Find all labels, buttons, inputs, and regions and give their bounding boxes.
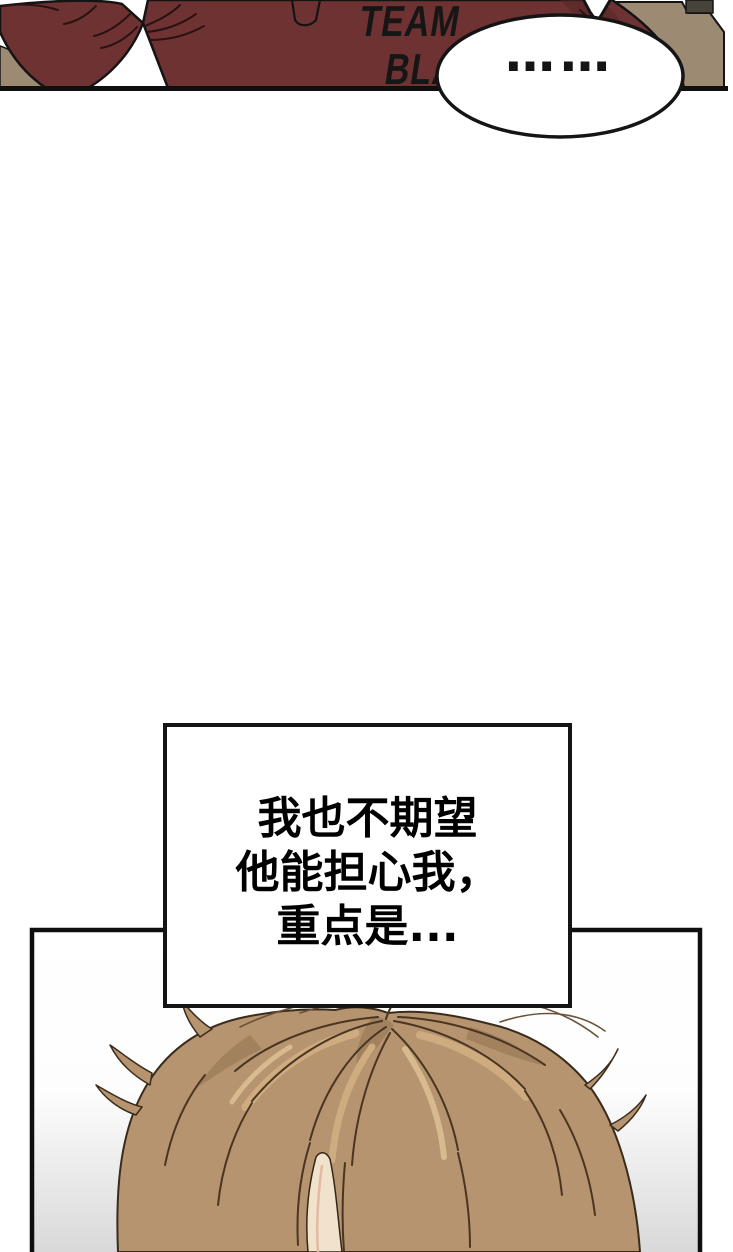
shirt-placket [292, 0, 320, 25]
speech-bubble-text: …… [437, 30, 683, 78]
narration-box: 我也不期望 他能担心我， 重点是... [163, 723, 572, 1008]
dark-object [686, 0, 713, 13]
narration-line-2: 他能担心我， [236, 846, 500, 900]
narration-line-3: 重点是... [276, 900, 458, 954]
narration-line-1: 我也不期望 [258, 792, 478, 846]
comic-page: TEAM BLA …… 我也不期望 他能担心我， 重点是... [0, 0, 733, 1252]
top-panel: TEAM BLA [0, 0, 733, 160]
